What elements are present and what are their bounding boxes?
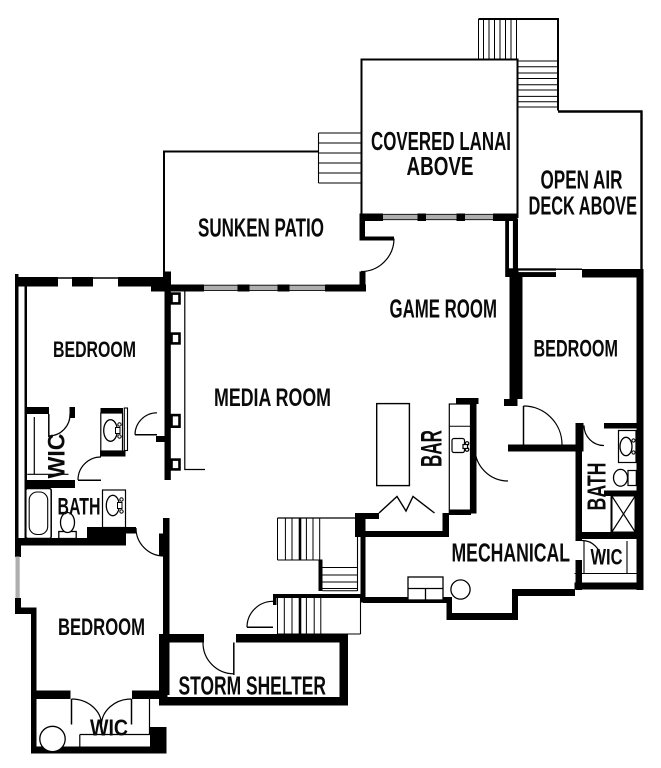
svg-text:WIC: WIC bbox=[591, 545, 623, 570]
svg-text:DECK ABOVE: DECK ABOVE bbox=[529, 191, 638, 221]
svg-text:BATH: BATH bbox=[582, 463, 612, 511]
svg-text:MECHANICAL: MECHANICAL bbox=[452, 538, 571, 568]
svg-text:MEDIA ROOM: MEDIA ROOM bbox=[214, 384, 331, 412]
svg-text:WIC: WIC bbox=[44, 434, 71, 479]
svg-text:GAME ROOM: GAME ROOM bbox=[390, 294, 498, 324]
svg-text:BEDROOM: BEDROOM bbox=[58, 614, 145, 641]
svg-text:BAR: BAR bbox=[416, 430, 449, 467]
svg-text:ABOVE: ABOVE bbox=[407, 151, 474, 181]
svg-text:BEDROOM: BEDROOM bbox=[534, 336, 619, 363]
svg-text:SUNKEN PATIO: SUNKEN PATIO bbox=[198, 213, 324, 243]
svg-text:BEDROOM: BEDROOM bbox=[53, 337, 136, 362]
svg-text:WIC: WIC bbox=[90, 715, 128, 741]
svg-text:STORM SHELTER: STORM SHELTER bbox=[179, 673, 327, 701]
svg-text:BATH: BATH bbox=[58, 494, 101, 521]
